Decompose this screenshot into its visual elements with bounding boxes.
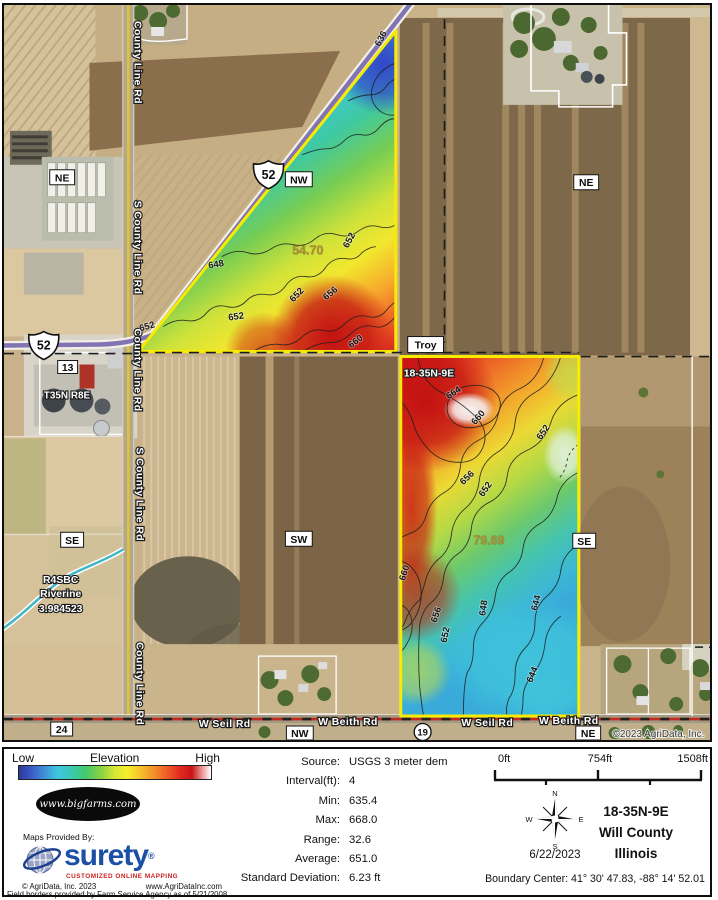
elevation-low-label: Low [12, 751, 34, 765]
stat-value: 635.4 [349, 795, 377, 807]
bigfarms-logo: www.bigfarms.com [36, 787, 140, 821]
elevation-ramp-labels: Low Elevation High [12, 751, 220, 765]
farmstead-southeast [601, 644, 710, 720]
road-label: County Line Rd [133, 642, 144, 725]
contour-label: 652 [228, 310, 245, 323]
quarter-label-nw: NW [285, 172, 312, 187]
parcel-acres-label: 79.69 [473, 533, 504, 547]
road-label: W Seil Rd [199, 719, 251, 730]
wetland-label: 3.984523 [39, 604, 83, 615]
stat-label: Average: [236, 853, 340, 865]
quarter-label-ne3: NE [576, 726, 601, 740]
fsa-note: Field borders provided by Farm Service A… [7, 890, 229, 899]
road-label: W Beith Rd [539, 716, 599, 727]
quarter-label-nw2: NW [286, 726, 313, 740]
elevation-map-report: County Line Rd S County Line Rd County L… [0, 0, 718, 900]
road-label: W Seil Rd [461, 718, 513, 729]
quarter-label-sw: SW [285, 531, 312, 546]
stat-value: 4 [349, 775, 355, 787]
elevation-title: Elevation [90, 751, 139, 765]
stat-row: Source:USGS 3 meter dem [236, 756, 476, 768]
bigfarms-url: www.bigfarms.com [39, 799, 136, 810]
stat-value: USGS 3 meter dem [349, 756, 448, 768]
surety-wordmark: surety® [64, 841, 154, 871]
parcel-acres-label: 54.70 [292, 244, 323, 258]
road-label: S County Line Rd [131, 201, 142, 295]
road-label: S County Line Rd [133, 447, 144, 541]
svg-text:NE: NE [579, 178, 594, 189]
svg-text:Troy: Troy [415, 341, 437, 352]
stat-label: Source: [236, 756, 340, 768]
stat-row: Standard Deviation:6.23 ft [236, 872, 476, 884]
stat-label: Max: [236, 814, 340, 826]
section-number-13: 13 [58, 361, 78, 374]
stat-label: Interval(ft): [236, 775, 340, 787]
scale-tick-label: 754ft [588, 753, 612, 765]
scale-bar-graphic [492, 768, 704, 786]
stat-value: 6.23 ft [349, 872, 380, 884]
stat-label: Min: [236, 795, 340, 807]
stat-row: Min:635.4 [236, 795, 476, 807]
svg-text:W: W [525, 815, 533, 824]
svg-text:52: 52 [37, 339, 51, 353]
svg-text:SE: SE [577, 537, 591, 548]
map-canvas: County Line Rd S County Line Rd County L… [2, 3, 712, 742]
svg-text:NW: NW [290, 175, 308, 186]
surety-logo: surety® [22, 841, 222, 877]
map-svg: County Line Rd S County Line Rd County L… [4, 5, 710, 740]
road-label: County Line Rd [131, 21, 142, 104]
road-label: W Beith Rd [318, 717, 378, 728]
surety-tagline: CUSTOMIZED ONLINE MAPPING [66, 873, 178, 880]
section-number-24: 24 [51, 722, 73, 736]
location-section: 18-35N-9E [562, 801, 710, 822]
scale-tick-label: 0ft [498, 753, 510, 765]
svg-text:NW: NW [291, 729, 309, 740]
contour-label: 648 [477, 599, 490, 616]
elevation-high-label: High [195, 751, 220, 765]
svg-text:NE: NE [55, 173, 70, 184]
stat-row: Max:668.0 [236, 814, 476, 826]
quarter-label-ne1: NE [50, 170, 75, 185]
svg-text:52: 52 [262, 168, 276, 182]
location-county: Will County [562, 822, 710, 843]
stat-row: Average:651.0 [236, 853, 476, 865]
location-block: 18-35N-9E Will County Illinois [562, 801, 710, 864]
elevation-stats: Source:USGS 3 meter dem Interval(ft):4 M… [236, 756, 476, 892]
stat-value: 32.6 [349, 834, 371, 846]
stat-label: Standard Deviation: [236, 872, 340, 884]
farmstead-northeast [503, 5, 626, 107]
township-label: T35N R8E [44, 390, 91, 401]
stat-value: 651.0 [349, 853, 377, 865]
svg-text:SW: SW [290, 535, 307, 546]
map-copyright: ©2023 AgriData, Inc. [613, 729, 705, 740]
road-label: County Line Rd [131, 329, 142, 412]
stat-row: Interval(ft):4 [236, 775, 476, 787]
town-label-troy: Troy [408, 337, 444, 353]
wetland-label: Riverine [40, 589, 81, 600]
legend-panel: Low Elevation High www.bigfarms.com Maps… [2, 747, 712, 897]
svg-text:13: 13 [62, 363, 74, 374]
stat-value: 668.0 [349, 814, 377, 826]
elevation-color-ramp [18, 765, 212, 780]
scale-bar: 0ft 754ft 1508ft [492, 753, 708, 787]
svg-text:SE: SE [65, 536, 79, 547]
svg-text:N: N [552, 789, 557, 798]
stat-row: Range:32.6 [236, 834, 476, 846]
surety-globe-icon [22, 841, 64, 879]
svg-text:NE: NE [581, 729, 596, 740]
svg-text:24: 24 [56, 725, 68, 736]
quarter-label-ne2: NE [574, 175, 599, 190]
county-19-shield: 19 [414, 724, 431, 740]
wetland-label: R4SBC [43, 575, 79, 586]
scale-tick-label: 1508ft [677, 753, 708, 765]
section-label: 18-35N-9E [404, 368, 454, 379]
location-state: Illinois [562, 843, 710, 864]
quarter-label-se2: SE [573, 533, 596, 548]
svg-text:19: 19 [417, 727, 427, 738]
boundary-center: Boundary Center: 41° 30' 47.83, -88° 14'… [478, 873, 712, 885]
stat-label: Range: [236, 834, 340, 846]
quarter-label-se1: SE [61, 532, 84, 547]
